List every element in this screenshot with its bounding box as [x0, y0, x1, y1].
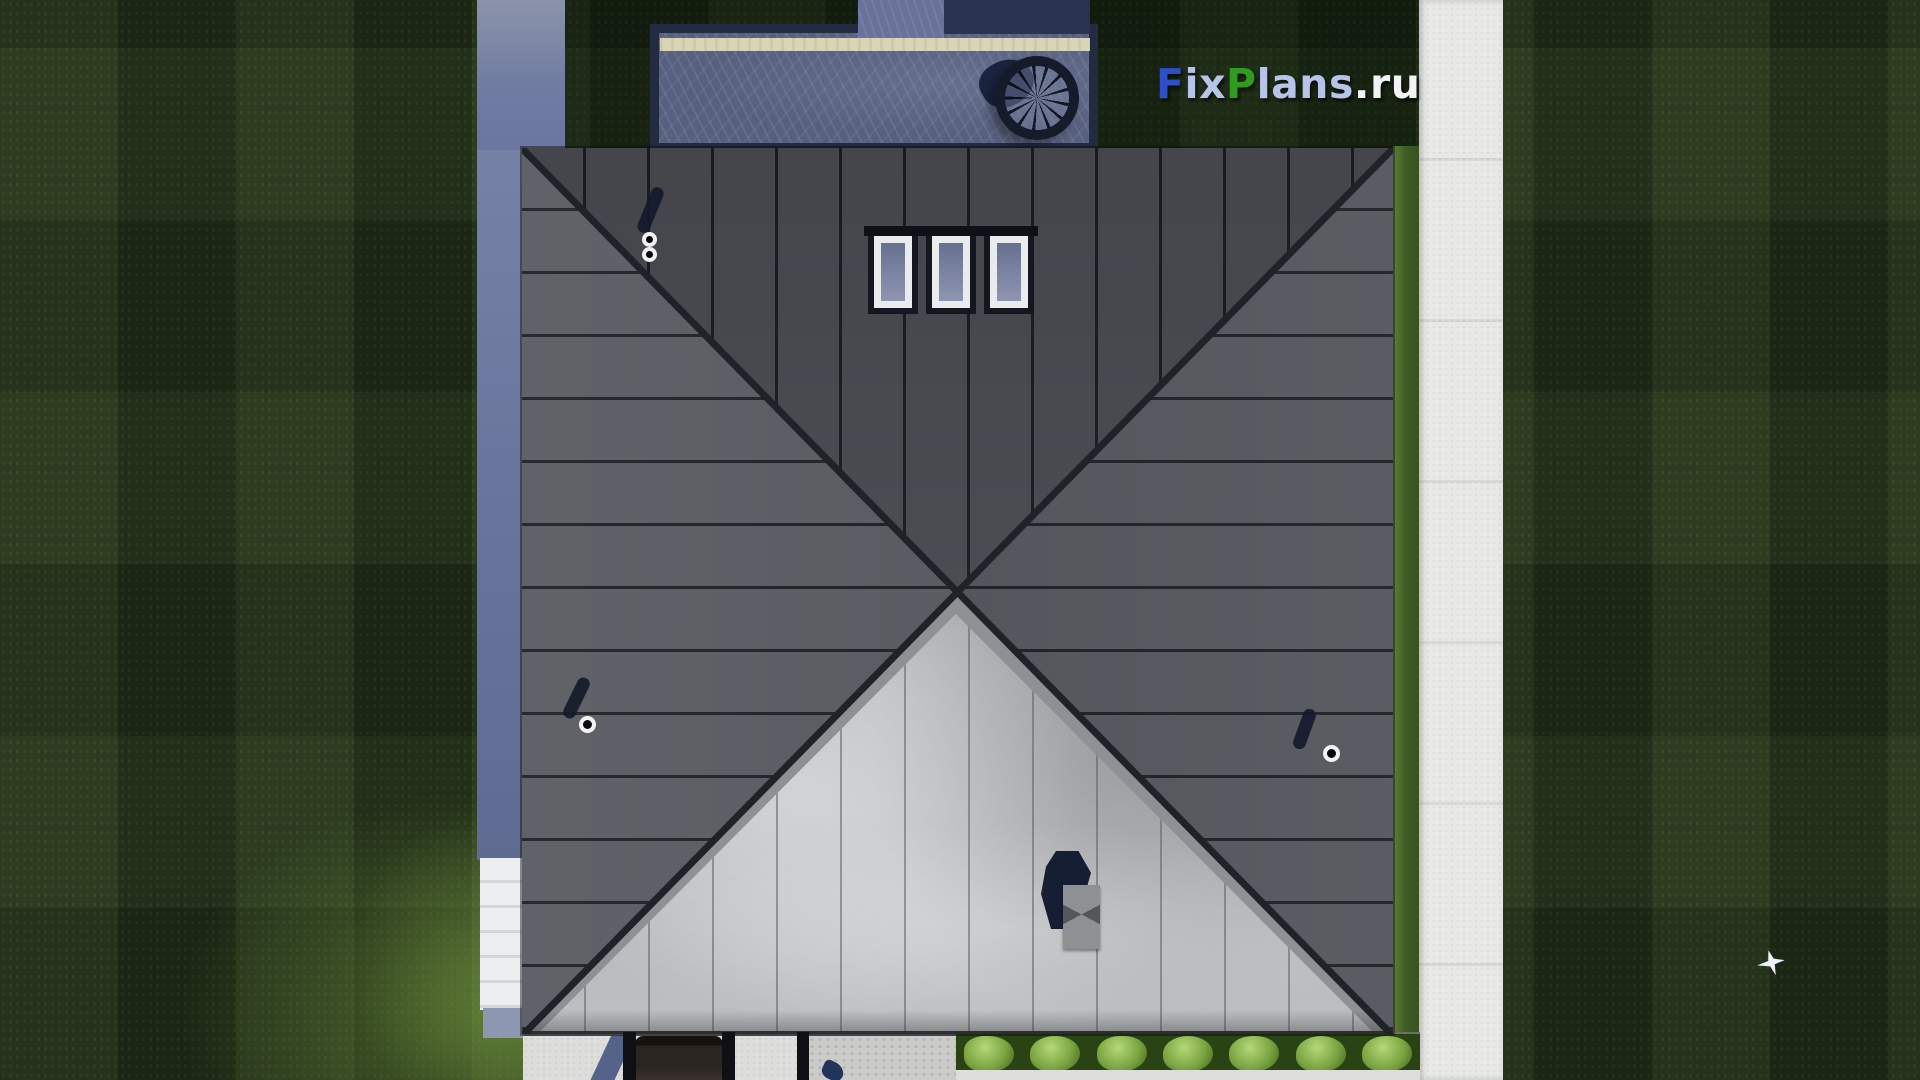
hedge-bush	[1229, 1036, 1279, 1072]
eave-strip	[522, 1010, 1393, 1034]
skylight-cap	[980, 226, 1038, 236]
chimney	[1063, 885, 1100, 949]
hedge-bush	[1097, 1036, 1147, 1072]
hedge-bush	[1163, 1036, 1213, 1072]
pergola-bar	[944, 0, 1090, 34]
logo-letter-segment: ix	[1185, 60, 1227, 108]
stairs-landing	[483, 1008, 523, 1038]
skylight-glass	[881, 243, 905, 301]
hedge	[956, 1034, 1420, 1072]
garden-path	[858, 0, 944, 38]
exterior-stairs	[480, 858, 524, 1010]
side-path-left	[477, 150, 523, 860]
house-roof	[522, 148, 1393, 1034]
skylight-row	[868, 230, 1034, 314]
hedge-border-pavement	[956, 1070, 1420, 1080]
skylight-window	[926, 230, 976, 314]
skylight-glass	[997, 243, 1021, 301]
logo-letter-segment: lans	[1257, 60, 1354, 108]
skylight-window	[868, 230, 918, 314]
fixplans-watermark: FixPlans.ru	[1156, 60, 1420, 108]
hedge-bush	[964, 1036, 1014, 1072]
hedge-bush	[1296, 1036, 1346, 1072]
patio-chair	[995, 56, 1079, 140]
skylight-cap	[864, 226, 922, 236]
carport-pillar	[797, 1032, 809, 1080]
skylight-glass	[939, 243, 963, 301]
skylight-window	[984, 230, 1034, 314]
skylight-cap	[922, 226, 980, 236]
carport-pillar	[722, 1032, 735, 1080]
carport-pillar	[623, 1032, 636, 1080]
logo-letter-segment: .ru	[1354, 60, 1420, 108]
roof-vent-cap	[642, 247, 657, 262]
terrace	[650, 24, 1098, 152]
roof-vent-cap	[579, 716, 596, 733]
logo-letter-segment: P	[1226, 60, 1257, 108]
side-path-top	[477, 0, 565, 153]
roof-vent-cap	[1323, 745, 1340, 762]
aerial-render: FixPlans.ru	[0, 0, 1920, 1080]
walkway	[1419, 0, 1503, 1080]
car	[635, 1036, 723, 1080]
grass-strip	[1393, 146, 1422, 1072]
hedge-bush	[1030, 1036, 1080, 1072]
terrace-bench	[660, 38, 1090, 51]
roof-vent-cap	[642, 232, 657, 247]
hedge-bush	[1362, 1036, 1412, 1072]
logo-letter-segment: F	[1156, 60, 1185, 108]
